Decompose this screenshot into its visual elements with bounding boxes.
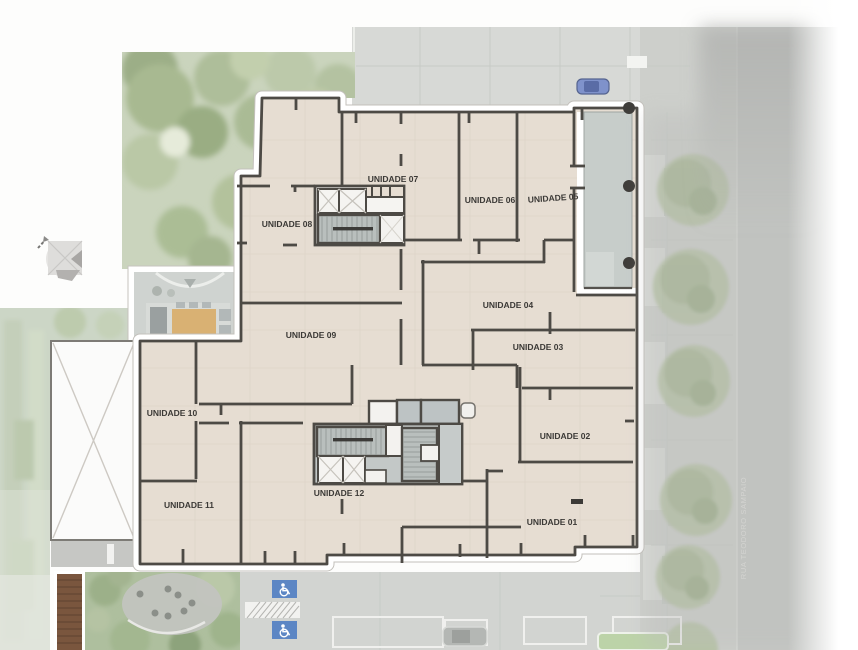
svg-text:UNIDADE 10: UNIDADE 10 <box>147 408 198 418</box>
svg-text:UNIDADE 07: UNIDADE 07 <box>368 174 419 184</box>
svg-text:UNIDADE 08: UNIDADE 08 <box>262 219 313 229</box>
svg-text:UNIDADE 11: UNIDADE 11 <box>164 500 214 510</box>
svg-text:UNIDADE 03: UNIDADE 03 <box>513 342 564 352</box>
svg-text:UNIDADE 04: UNIDADE 04 <box>483 300 534 310</box>
svg-text:UNIDADE 06: UNIDADE 06 <box>465 195 516 205</box>
svg-text:UNIDADE 09: UNIDADE 09 <box>286 330 337 340</box>
svg-text:UNIDADE 01: UNIDADE 01 <box>527 517 578 527</box>
svg-text:RUA TEODORO SAMPAIO: RUA TEODORO SAMPAIO <box>739 477 748 579</box>
svg-text:UNIDADE 02: UNIDADE 02 <box>540 431 591 441</box>
svg-text:UNIDADE 12: UNIDADE 12 <box>314 488 365 498</box>
